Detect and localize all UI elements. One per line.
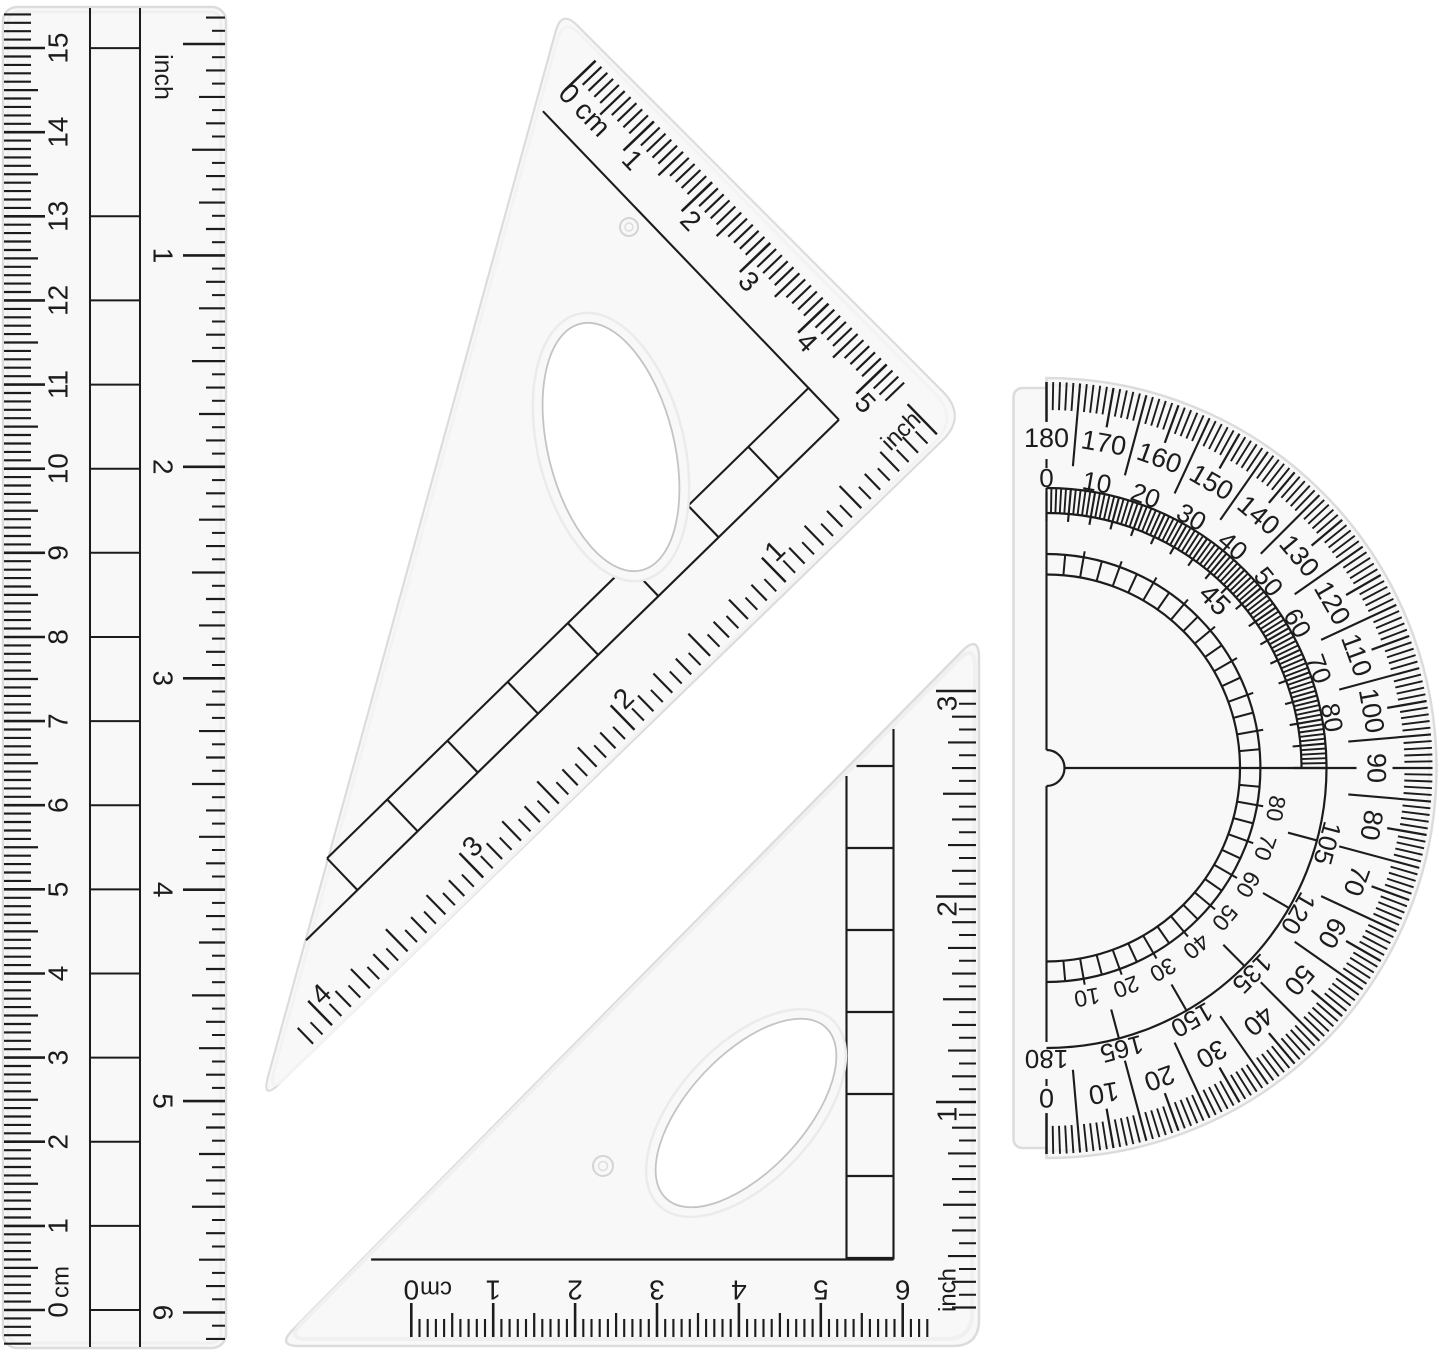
svg-text:10: 10: [43, 453, 74, 484]
svg-text:3: 3: [43, 1050, 74, 1066]
svg-text:15: 15: [43, 33, 74, 64]
svg-text:4: 4: [148, 882, 179, 898]
svg-text:cm: cm: [48, 1266, 75, 1298]
svg-text:14: 14: [43, 117, 74, 148]
svg-text:1: 1: [485, 1275, 501, 1306]
svg-text:3: 3: [649, 1275, 665, 1306]
svg-text:0: 0: [43, 1302, 74, 1318]
svg-text:2: 2: [148, 459, 179, 475]
svg-text:8: 8: [43, 629, 74, 645]
svg-text:10: 10: [1072, 982, 1102, 1012]
svg-text:5: 5: [148, 1093, 179, 1109]
svg-text:2: 2: [567, 1275, 583, 1306]
svg-text:11: 11: [43, 370, 74, 399]
svg-text:2: 2: [43, 1134, 74, 1150]
svg-text:80: 80: [1315, 701, 1350, 735]
svg-text:6: 6: [43, 797, 74, 813]
svg-text:3: 3: [148, 671, 179, 687]
svg-text:inch: inch: [149, 54, 177, 100]
svg-text:4: 4: [731, 1275, 747, 1306]
svg-text:9: 9: [43, 545, 74, 561]
svg-text:0: 0: [1039, 1083, 1054, 1113]
svg-text:13: 13: [43, 201, 74, 232]
svg-text:90: 90: [1362, 753, 1392, 783]
svg-text:80: 80: [1261, 794, 1291, 824]
svg-text:7: 7: [43, 713, 74, 729]
svg-text:inch: inch: [935, 1268, 962, 1312]
svg-text:0: 0: [404, 1275, 420, 1306]
svg-text:5: 5: [813, 1275, 829, 1306]
svg-text:5: 5: [43, 882, 74, 898]
svg-text:10: 10: [1086, 1076, 1121, 1111]
svg-text:10: 10: [1080, 465, 1114, 500]
svg-text:80: 80: [1354, 808, 1389, 843]
svg-text:6: 6: [148, 1305, 179, 1321]
svg-text:1: 1: [932, 1107, 963, 1123]
svg-text:6: 6: [895, 1275, 911, 1306]
svg-text:12: 12: [43, 285, 74, 316]
svg-text:4: 4: [43, 966, 74, 982]
svg-text:180: 180: [1024, 423, 1069, 453]
svg-text:180: 180: [1025, 1044, 1068, 1074]
svg-text:1: 1: [148, 248, 179, 264]
svg-text:1: 1: [43, 1218, 74, 1234]
svg-text:2: 2: [932, 901, 963, 917]
svg-text:cm: cm: [420, 1276, 452, 1303]
svg-text:3: 3: [932, 696, 963, 712]
